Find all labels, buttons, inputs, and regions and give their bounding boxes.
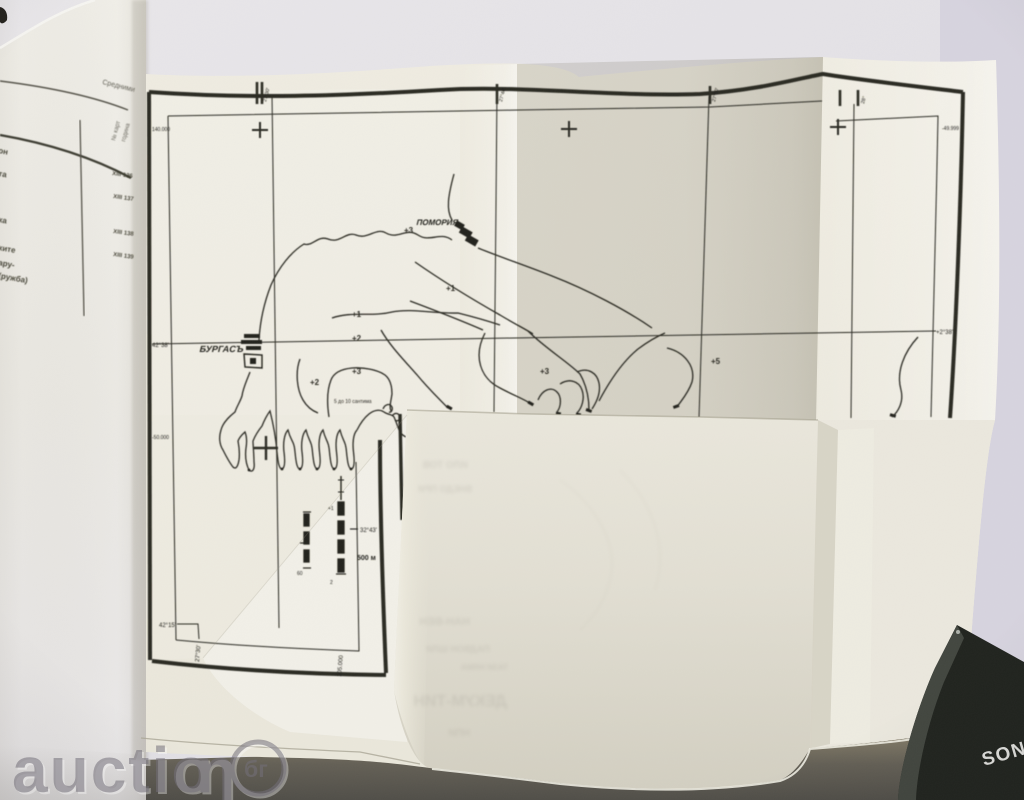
svg-text:η: η [196,734,235,800]
svg-text:auctio: auctio [12,734,212,800]
svg-text:бг: бг [244,756,268,782]
